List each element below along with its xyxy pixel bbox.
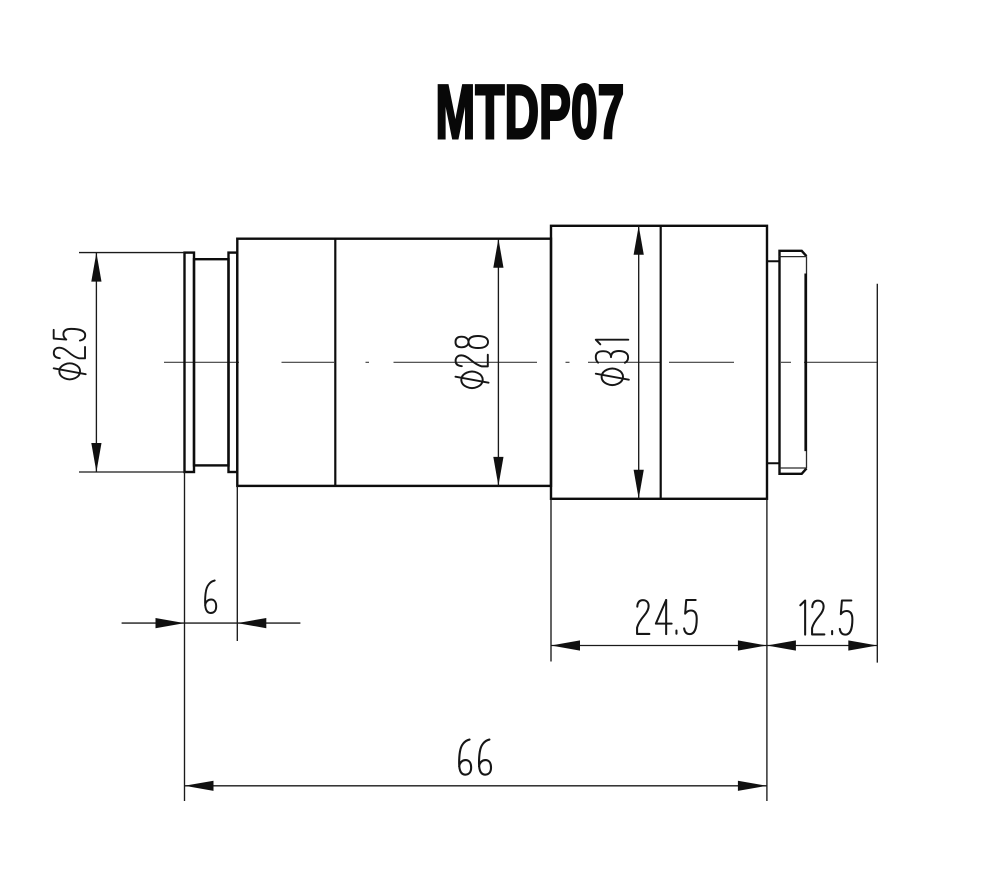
svg-text:MTDP07: MTDP07 (435, 71, 624, 155)
